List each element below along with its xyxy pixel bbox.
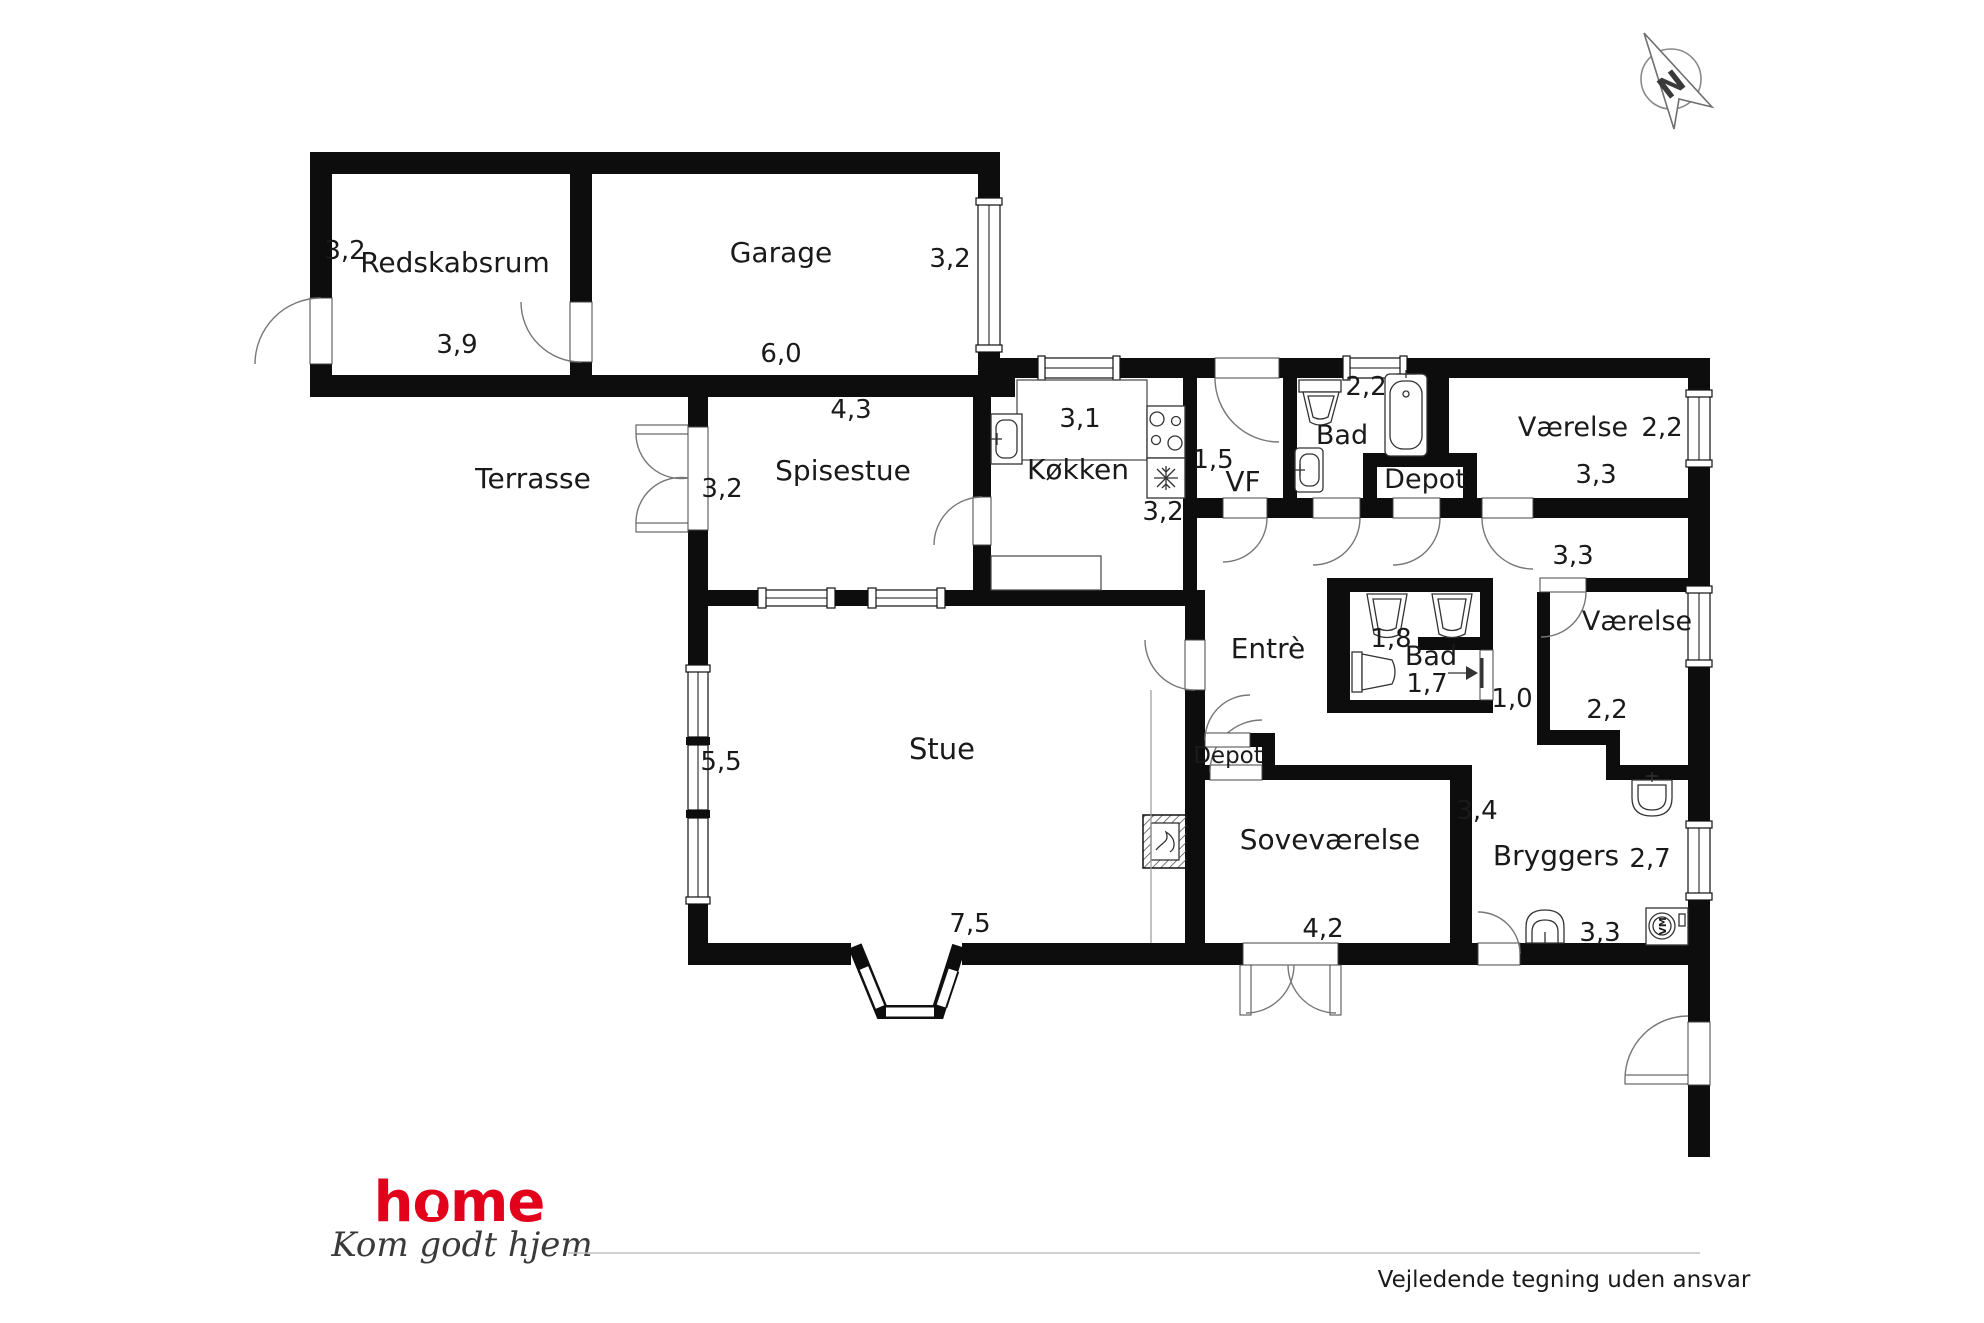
vf-entre-door (1223, 498, 1267, 562)
north-arrow: N (1641, 33, 1712, 129)
dim-label-kokken-h: 3,2 (1142, 497, 1183, 527)
vaerelse-tr-window (1686, 390, 1712, 467)
dim-label-bad-top-w: 2,2 (1345, 372, 1386, 402)
room-label-depot-mid: Depot (1193, 743, 1263, 769)
south-exterior-door (1625, 1016, 1710, 1085)
sovevaerelse-french-doors (1240, 943, 1341, 1015)
dim-label-spisestue-w: 4,3 (830, 395, 871, 425)
floorplan-page: VM N RedskabsrumGarageTerrasseSpisestueK… (0, 0, 1984, 1323)
entre-stue-door (1145, 640, 1205, 690)
room-label-redskabsrum: Redskabsrum (360, 246, 550, 279)
room-label-garage: Garage (730, 236, 833, 269)
dim-label-vaerelse-tr-h: 2,2 (1641, 413, 1682, 443)
terrasse-french-doors (636, 425, 708, 532)
dim-label-bryggers-w: 3,3 (1579, 918, 1620, 948)
dim-label-vaerelse-r-w: 2,2 (1586, 695, 1627, 725)
dim-label-vf-w: 1,5 (1192, 445, 1233, 475)
footer-disclaimer: Vejledende tegning uden ansvar (1378, 1267, 1751, 1293)
toilet-bad-top (1299, 380, 1341, 425)
room-label-bryggers: Bryggers (1493, 839, 1619, 872)
sink-bad-mid-2 (1432, 594, 1472, 638)
room-label-vaerelse-top-right: Værelse (1518, 412, 1628, 443)
dim-label-vaerelse-tr-w: 3,3 (1575, 460, 1616, 490)
dim-label-sovevaerelse-h: 3,4 (1456, 796, 1497, 826)
dim-label-gang2-w: 1,0 (1491, 684, 1532, 714)
kitchen-sink (991, 414, 1022, 464)
bathtub (1385, 370, 1427, 456)
floor-plan-svg: VM N RedskabsrumGarageTerrasseSpisestueK… (0, 0, 1984, 1323)
redskabsrum-garage-door (521, 302, 592, 362)
room-label-vaerelse-right: Værelse (1582, 606, 1692, 637)
dim-label-redskabsrum-w: 3,9 (436, 330, 477, 360)
dim-label-garage-h: 3,2 (929, 244, 970, 274)
room-label-bad-mid: Bad (1405, 641, 1457, 672)
vaerelse-tr-door (1482, 498, 1533, 569)
room-label-spisestue: Spisestue (775, 454, 911, 487)
brand-logo: home Kom godt hjem (330, 1170, 1700, 1265)
bryggers-window (1686, 821, 1712, 900)
dim-label-bryggers-h: 2,7 (1629, 844, 1670, 874)
depot-mid-door (1205, 695, 1250, 747)
sink-bryggers-bottom (1526, 910, 1564, 943)
room-label-kokken: Køkken (1027, 453, 1129, 486)
room-label-bad-top: Bad (1316, 420, 1368, 451)
fridge-icon (1147, 458, 1185, 498)
room-label-sovevaerelse: Soveværelse (1240, 823, 1420, 856)
dim-label-redskabsrum-h: 3,2 (324, 236, 365, 266)
dim-label-garage-w: 6,0 (760, 339, 801, 369)
stove (1147, 406, 1185, 458)
room-label-depot-top: Depot (1384, 464, 1466, 495)
dim-label-spisestue-h: 3,2 (701, 474, 742, 504)
dim-label-gang-w: 3,3 (1552, 541, 1593, 571)
dim-label-bad-mid-h: 1,7 (1406, 669, 1447, 699)
depot-top-door (1393, 498, 1440, 565)
walls (310, 152, 1710, 1157)
room-label-terrasse: Terrasse (474, 462, 591, 495)
stue-west-windows (686, 665, 710, 904)
washing-machine-label: VM (1658, 917, 1669, 935)
washing-machine: VM (1646, 908, 1688, 945)
dim-label-stue-h: 5,5 (700, 747, 741, 777)
spisestue-kokken-door (934, 497, 991, 545)
kitchen-window (1038, 356, 1120, 380)
sink-bad-mid-3 (1352, 652, 1395, 692)
sink-bad-top (1295, 448, 1323, 492)
brand-tagline: Kom godt hjem (330, 1225, 592, 1265)
bryggers-exterior-door (1478, 912, 1520, 965)
dim-label-bad-mid-w: 1,8 (1370, 624, 1411, 654)
fireplace (1143, 815, 1187, 868)
bad-top-door (1313, 498, 1360, 565)
room-label-entre: Entrè (1231, 632, 1306, 665)
redskabsrum-exterior-door (255, 298, 332, 364)
dim-label-kokken-w: 3,1 (1059, 404, 1100, 434)
front-door-vf (1215, 358, 1279, 442)
dim-label-stue-w: 7,5 (949, 909, 990, 939)
garage-window (976, 198, 1002, 352)
dim-label-sovevaerelse-w: 4,2 (1302, 914, 1343, 944)
room-label-stue: Stue (909, 732, 975, 766)
